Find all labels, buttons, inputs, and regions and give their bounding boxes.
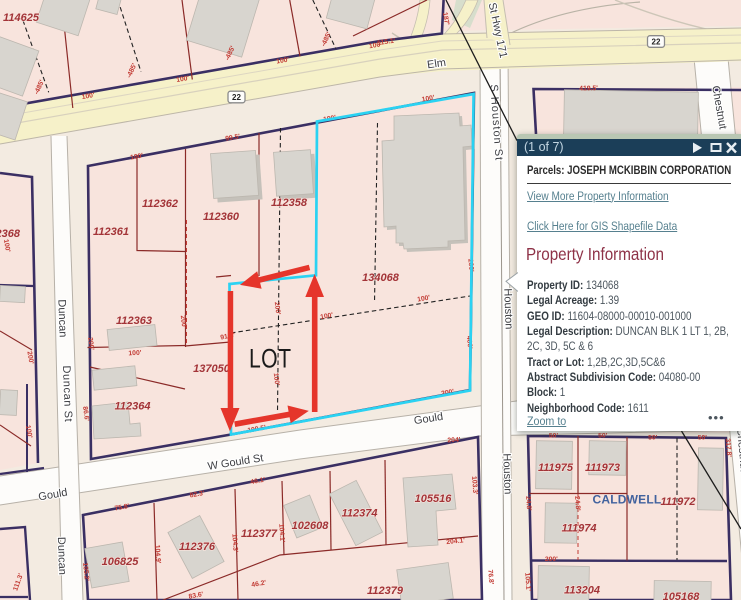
svg-text:50': 50' (598, 433, 608, 440)
svg-text:22: 22 (232, 93, 241, 102)
svg-text:112379: 112379 (367, 585, 404, 597)
svg-text:112376: 112376 (179, 541, 216, 553)
svg-text:100': 100' (128, 350, 142, 358)
svg-text:111975: 111975 (538, 462, 574, 474)
svg-text:50': 50' (648, 435, 658, 442)
svg-text:111973: 111973 (585, 462, 620, 474)
svg-text:Duncan St: Duncan St (60, 365, 74, 422)
svg-text:103.3': 103.3' (470, 476, 478, 495)
svg-text:104.3': 104.3' (230, 534, 238, 553)
svg-text:114625: 114625 (3, 12, 40, 24)
svg-text:111974: 111974 (561, 523, 596, 535)
svg-text:112374: 112374 (342, 508, 378, 520)
svg-text:104.1': 104.1' (277, 524, 285, 543)
svg-text:134068: 134068 (362, 272, 400, 284)
svg-text:50': 50' (698, 435, 708, 442)
svg-text:113204: 113204 (564, 585, 600, 597)
svg-text:CALDWELL: CALDWELL (593, 493, 662, 507)
svg-text:104.9': 104.9' (153, 545, 161, 564)
svg-text:419.5': 419.5' (579, 85, 598, 92)
svg-text:102608: 102608 (292, 520, 330, 532)
svg-text:Houston: Houston (501, 288, 514, 329)
svg-text:76.8': 76.8' (486, 569, 494, 585)
svg-text:111972: 111972 (660, 496, 695, 508)
svg-text:105.1': 105.1' (523, 572, 531, 591)
svg-text:50': 50' (549, 433, 559, 440)
svg-text:Duncan: Duncan (55, 299, 68, 337)
svg-text:137050: 137050 (193, 363, 231, 375)
svg-text:112364: 112364 (115, 401, 151, 413)
svg-text:112377: 112377 (241, 528, 278, 540)
svg-text:204': 204' (447, 437, 461, 445)
svg-text:105168: 105168 (663, 591, 701, 600)
svg-text:112368: 112368 (0, 228, 21, 240)
svg-text:112363: 112363 (116, 315, 152, 327)
svg-text:106825: 106825 (102, 556, 140, 568)
svg-text:105516: 105516 (415, 493, 453, 505)
svg-text:112358: 112358 (271, 197, 308, 209)
svg-text:112361: 112361 (93, 226, 129, 238)
svg-text:LOT: LOT (249, 344, 291, 374)
svg-text:Houston: Houston (500, 453, 513, 494)
svg-text:Duncan: Duncan (55, 537, 68, 575)
svg-text:112362: 112362 (142, 198, 178, 210)
svg-text:22: 22 (652, 38, 661, 47)
svg-text:112360: 112360 (203, 211, 240, 223)
svg-text:200': 200' (545, 556, 558, 563)
svg-text:24.8': 24.8' (524, 496, 532, 512)
svg-text:24.8': 24.8' (573, 496, 581, 512)
